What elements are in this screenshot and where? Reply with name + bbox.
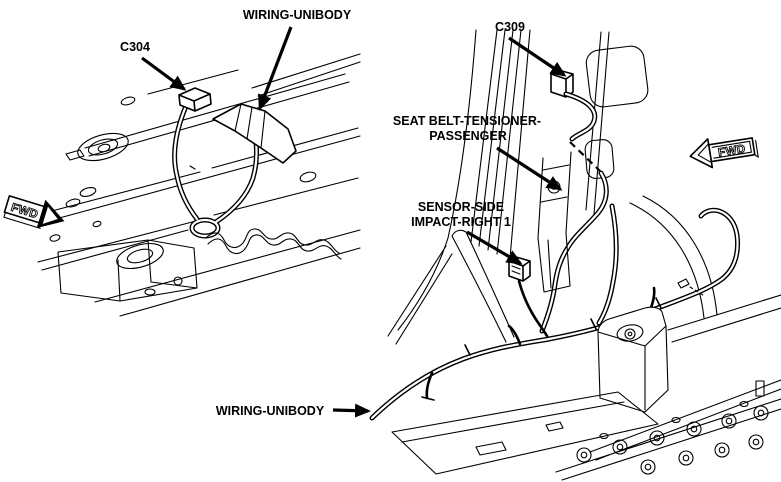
- floor-grommet: [75, 128, 132, 165]
- loose-screw: [678, 279, 689, 288]
- floor-hole: [120, 96, 135, 107]
- bracket-hole: [145, 289, 155, 295]
- wiring-unibody-left-label: WIRING-UNIBODY: [243, 8, 352, 22]
- pillar-slot-upper: [585, 45, 650, 109]
- side-impact-sensor-label-line2: IMPACT-RIGHT 1: [411, 215, 511, 229]
- c309-label: C309: [495, 20, 525, 34]
- floor-hole: [79, 186, 97, 198]
- illustration-canvas: C304 WIRING-UNIBODY FWD: [0, 0, 781, 482]
- pillar-harness-lower: [542, 173, 606, 331]
- side-impact-sensor-label-line1: SENSOR-SIDE: [418, 200, 504, 214]
- seat-back-edge-lines: [452, 230, 514, 342]
- floor-pan-view: C304 WIRING-UNIBODY FWD: [3, 8, 360, 316]
- floor-hole: [49, 234, 60, 243]
- pillar-harness-hidden-dashed: [570, 142, 600, 171]
- wiring-unibody-bottom-leader-arrow: [333, 410, 368, 411]
- seat-belt-tensioner-label-line2: PASSENGER: [429, 129, 507, 143]
- b-pillar-view: C309 SEAT BELT-TENSIONER- PASSENGER SENS…: [216, 20, 781, 480]
- fwd-arrow-right: FWD: [688, 132, 759, 171]
- floor-console-box: [598, 307, 668, 412]
- seat-belt-tensioner-label-line1: SEAT BELT-TENSIONER-: [393, 114, 541, 128]
- b-pillar-lines: [388, 30, 609, 344]
- c304-leader-arrow: [142, 58, 184, 89]
- fwd-arrow-left: FWD: [3, 190, 68, 234]
- wiring-unibody-left-leader-arrow: [260, 27, 291, 108]
- rocker-sill-rails: [556, 295, 781, 480]
- c304-label: C304: [120, 40, 150, 54]
- seat-belt-tensioner-passenger: [538, 152, 571, 292]
- floor-hole: [65, 198, 80, 209]
- sensor-wire: [519, 281, 547, 336]
- floor-hole: [92, 220, 101, 227]
- floor-hole: [299, 170, 317, 183]
- bracket-hole: [174, 277, 182, 285]
- wiring-unibody-bottom-label: WIRING-UNIBODY: [216, 404, 325, 418]
